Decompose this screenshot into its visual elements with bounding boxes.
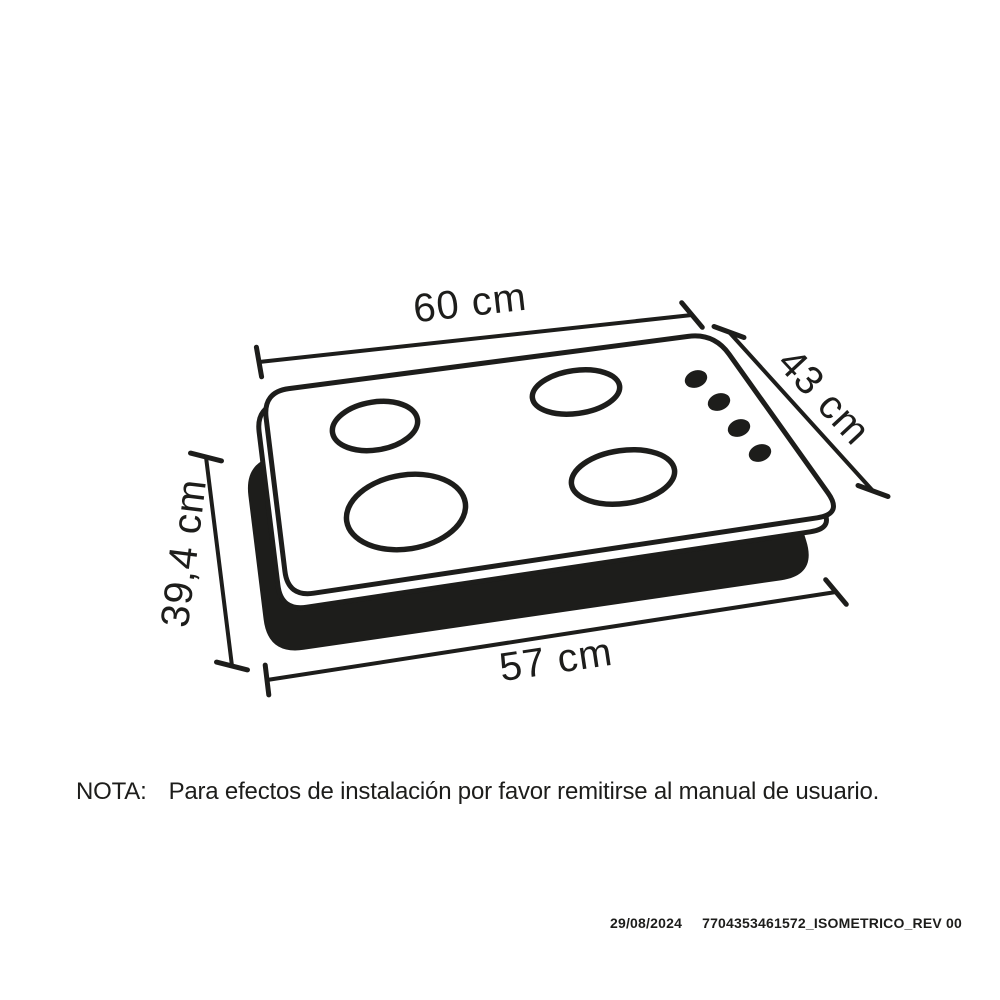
note-text: Para efectos de instalación por favor re… xyxy=(169,778,880,805)
dimension-label-left-cutout-depth: 39,4 cm xyxy=(153,476,215,630)
note-label: NOTA: xyxy=(76,778,147,805)
dimension-tick-end xyxy=(858,486,888,497)
dimension-tick-start xyxy=(714,327,744,338)
footer-document-id: 7704353461572_ISOMETRICO_REV 00 xyxy=(702,915,962,931)
cooktop-drawing: 60 cm 43 cm 39,4 cm 57 cm xyxy=(0,0,1000,1000)
dimension-tick-start xyxy=(256,347,261,377)
dimension-left-cutout-depth: 39,4 cm xyxy=(153,453,247,670)
footer-date: 29/08/2024 xyxy=(610,915,682,931)
dimension-label-bottom-cutout-width: 57 cm xyxy=(496,630,615,690)
dimension-tick-start xyxy=(265,665,269,695)
installation-note: NOTA:Para efectos de instalación por fav… xyxy=(76,778,879,806)
dimension-label-top-width: 60 cm xyxy=(411,275,529,332)
footer-meta: 29/08/20247704353461572_ISOMETRICO_REV 0… xyxy=(610,915,962,931)
isometric-dimension-sheet: 60 cm 43 cm 39,4 cm 57 cm NOTA:Para efec… xyxy=(0,0,1000,1000)
